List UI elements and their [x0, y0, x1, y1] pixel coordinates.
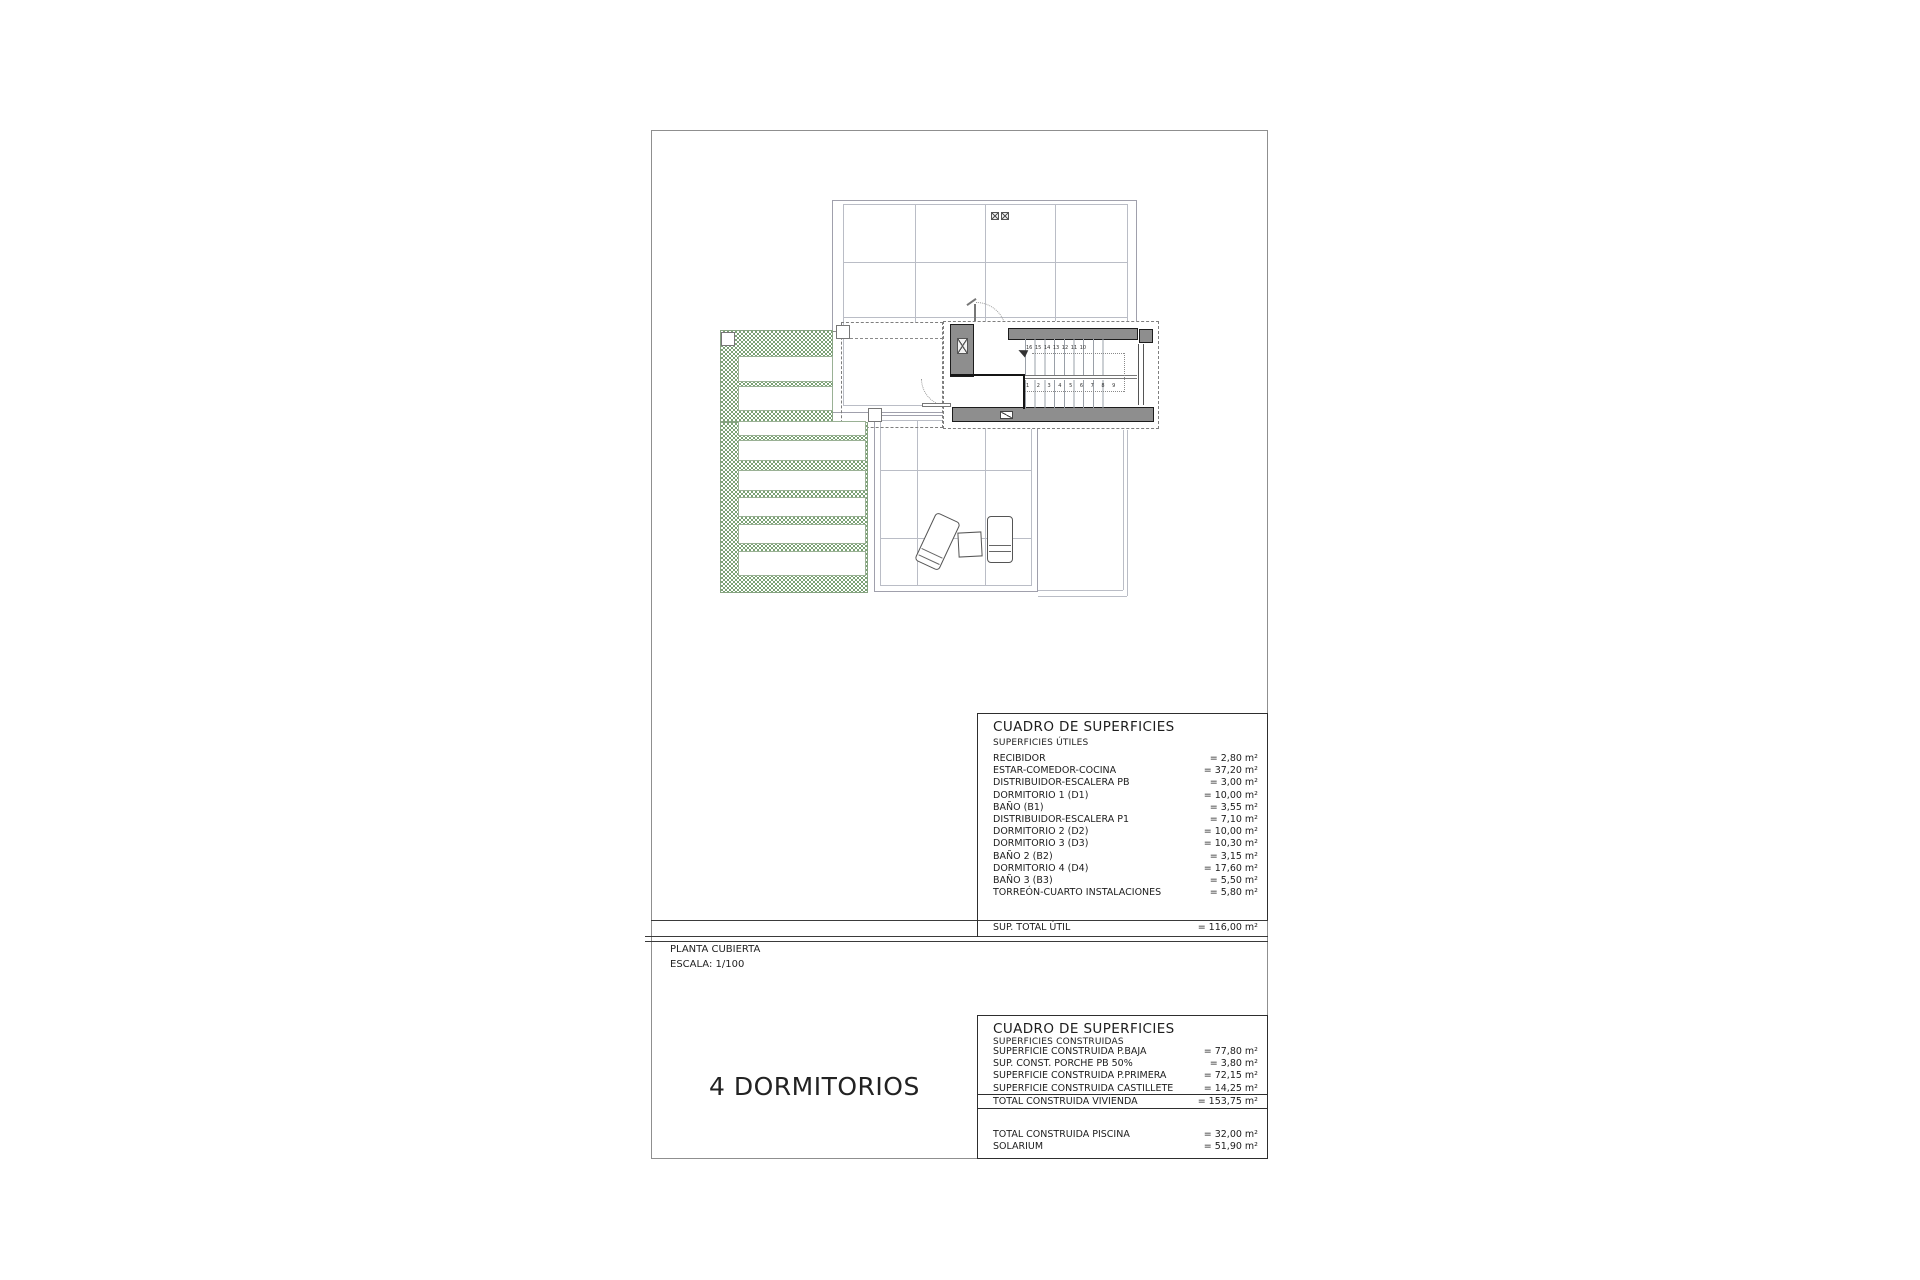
- bedrooms-caption: 4 DORMITORIOS: [709, 1072, 920, 1101]
- table-row: ESTAR-COMEDOR-COCINA= 37,20 m²: [993, 765, 1258, 777]
- pergola-slat: [738, 524, 866, 544]
- total-value: = 116,00 m²: [1198, 921, 1258, 935]
- row-value: = 3,55 m²: [1210, 802, 1258, 814]
- areas-rows-utiles: RECIBIDOR= 2,80 m² ESTAR-COMEDOR-COCINA=…: [993, 753, 1258, 899]
- row-value: = 3,15 m²: [1210, 851, 1258, 863]
- stair-walkline-turn: [1124, 353, 1125, 392]
- stair-corner-pier: [1139, 329, 1153, 343]
- roof-grid-v3: [1055, 204, 1056, 322]
- stair-step-numbers-upper: 16 15 14 13 12 11 10: [1026, 346, 1113, 351]
- parapet-line-v2: [1127, 430, 1128, 596]
- row-value: = 17,60 m²: [1204, 863, 1258, 875]
- total-value: = 153,75 m²: [1198, 1095, 1258, 1108]
- drawing-scale: ESCALA: 1/100: [670, 958, 744, 971]
- drain-symbol-icon: [1000, 411, 1013, 419]
- stair-walkline-top: [1032, 353, 1124, 354]
- row-label: BAÑO 2 (B2): [993, 851, 1053, 863]
- table-row: DORMITORIO 2 (D2)= 10,00 m²: [993, 826, 1258, 838]
- stair-step-numbers-lower: 1 2 3 4 5 6 7 8 9: [1026, 384, 1113, 389]
- table-row: DORMITORIO 3 (D3)= 10,30 m²: [993, 838, 1258, 850]
- pergola-slat: [738, 386, 833, 411]
- table-row: DISTRIBUIDOR-ESCALERA P1= 7,10 m²: [993, 814, 1258, 826]
- areas-rows-construidas: SUPERFICIE CONSTRUIDA P.BAJA= 77,80 m² S…: [993, 1046, 1258, 1095]
- row-label: SUPERFICIE CONSTRUIDA P.PRIMERA: [993, 1070, 1166, 1082]
- section-divider-rule-1: [645, 936, 1268, 937]
- roof-grid-h1: [843, 262, 1128, 263]
- stair-left-wall: [950, 324, 974, 377]
- row-label: DORMITORIO 4 (D4): [993, 863, 1088, 875]
- table-row: BAÑO 3 (B3)= 5,50 m²: [993, 875, 1258, 887]
- row-label: DISTRIBUIDOR-ESCALERA PB: [993, 777, 1130, 789]
- terrace-post: [868, 408, 882, 422]
- table-row: SUPERFICIE CONSTRUIDA P.PRIMERA= 72,15 m…: [993, 1070, 1258, 1082]
- table-row: SUPERFICIE CONSTRUIDA CASTILLETE= 14,25 …: [993, 1083, 1258, 1095]
- row-value: = 10,00 m²: [1204, 826, 1258, 838]
- sun-lounger: [987, 516, 1013, 563]
- stair-mid-landing: [1025, 375, 1137, 379]
- table-row: DISTRIBUIDOR-ESCALERA PB= 3,00 m²: [993, 777, 1258, 789]
- row-value: = 37,20 m²: [1204, 765, 1258, 777]
- table-row: SUPERFICIE CONSTRUIDA P.BAJA= 77,80 m²: [993, 1046, 1258, 1058]
- row-value: = 5,50 m²: [1210, 875, 1258, 887]
- roof-grid-v1: [915, 204, 916, 322]
- row-value: = 7,10 m²: [1210, 814, 1258, 826]
- row-value: = 3,00 m²: [1210, 777, 1258, 789]
- table-title: CUADRO DE SUPERFICIES: [993, 719, 1175, 735]
- parapet-line-h1: [1038, 590, 1123, 591]
- stair-window-icon: [957, 338, 968, 354]
- stair-window-strip: [1138, 344, 1144, 405]
- total-band-construidas-bottom: [977, 1108, 1268, 1109]
- row-label: BAÑO (B1): [993, 802, 1044, 814]
- section-divider-rule-2: [645, 941, 1268, 942]
- stair-walkline-bottom: [1025, 391, 1124, 392]
- row-label: DORMITORIO 1 (D1): [993, 790, 1088, 802]
- terrace-grid-v2: [985, 420, 986, 586]
- table-row: RECIBIDOR= 2,80 m²: [993, 753, 1258, 765]
- row-value: = 10,30 m²: [1204, 838, 1258, 850]
- pergola-post: [721, 332, 735, 346]
- row-label: DORMITORIO 2 (D2): [993, 826, 1088, 838]
- table-title: CUADRO DE SUPERFICIES: [993, 1021, 1175, 1037]
- row-label: TORREÓN-CUARTO INSTALACIONES: [993, 887, 1161, 899]
- pergola-slat: [738, 470, 866, 491]
- porch-dashed-beam: [845, 338, 943, 339]
- pergola-slat: [738, 551, 866, 576]
- table-subtitle: SUPERFICIES ÚTILES: [993, 738, 1088, 748]
- total-label: SUP. TOTAL ÚTIL: [993, 921, 1070, 935]
- row-value: = 32,00 m²: [1204, 1129, 1258, 1141]
- side-table: [957, 531, 982, 557]
- roof-vent-icon: [991, 212, 999, 220]
- row-value: = 72,15 m²: [1204, 1070, 1258, 1082]
- row-label: SUP. CONST. PORCHE PB 50%: [993, 1058, 1133, 1070]
- total-row-utiles: SUP. TOTAL ÚTIL = 116,00 m²: [993, 921, 1258, 935]
- row-label: BAÑO 3 (B3): [993, 875, 1053, 887]
- row-label: DORMITORIO 3 (D3): [993, 838, 1088, 850]
- row-value: = 14,25 m²: [1204, 1083, 1258, 1095]
- parapet-line-v1: [1123, 430, 1124, 590]
- total-label: TOTAL CONSTRUIDA VIVIENDA: [993, 1095, 1138, 1108]
- row-value: = 3,80 m²: [1210, 1058, 1258, 1070]
- row-value: = 77,80 m²: [1204, 1046, 1258, 1058]
- row-label: SUPERFICIE CONSTRUIDA P.BAJA: [993, 1046, 1147, 1058]
- row-label: SUPERFICIE CONSTRUIDA CASTILLETE: [993, 1083, 1173, 1095]
- roof-vent-icon: [1001, 212, 1009, 220]
- table-row: DORMITORIO 4 (D4)= 17,60 m²: [993, 863, 1258, 875]
- stair-bottom-wall: [952, 407, 1154, 422]
- row-value: = 10,00 m²: [1204, 790, 1258, 802]
- areas-table-utiles-side: [977, 920, 978, 937]
- row-value: = 2,80 m²: [1210, 753, 1258, 765]
- row-label: DISTRIBUIDOR-ESCALERA P1: [993, 814, 1129, 826]
- drawing-title: PLANTA CUBIERTA: [670, 943, 760, 956]
- row-value: = 51,90 m²: [1204, 1141, 1258, 1153]
- pergola-slat: [738, 440, 866, 461]
- drawing-sheet-canvas: 16 15 14 13 12 11 10 1 2 3 4 5 6 7 8 9 C…: [0, 0, 1920, 1280]
- stair-landing-wall-h: [950, 374, 1025, 376]
- table-row: SUP. CONST. PORCHE PB 50%= 3,80 m²: [993, 1058, 1258, 1070]
- table-row: TOTAL CONSTRUIDA PISCINA= 32,00 m²: [993, 1129, 1258, 1141]
- row-label: SOLARIUM: [993, 1141, 1043, 1153]
- porch-post: [836, 325, 850, 339]
- pergola-slat: [738, 356, 833, 382]
- parapet-line-h2: [1038, 596, 1127, 597]
- row-label: TOTAL CONSTRUIDA PISCINA: [993, 1129, 1130, 1141]
- row-value: = 5,80 m²: [1210, 887, 1258, 899]
- table-row: SOLARIUM= 51,90 m²: [993, 1141, 1258, 1153]
- pergola-slat: [738, 497, 866, 517]
- table-row: BAÑO (B1)= 3,55 m²: [993, 802, 1258, 814]
- table-row: TORREÓN-CUARTO INSTALACIONES= 5,80 m²: [993, 887, 1258, 899]
- terrace-door-leaf: [922, 403, 951, 407]
- total-row-construidas: TOTAL CONSTRUIDA VIVIENDA = 153,75 m²: [993, 1095, 1258, 1108]
- row-label: RECIBIDOR: [993, 753, 1046, 765]
- table-row: BAÑO 2 (B2)= 3,15 m²: [993, 851, 1258, 863]
- extra-rows-construidas: TOTAL CONSTRUIDA PISCINA= 32,00 m² SOLAR…: [993, 1129, 1258, 1153]
- pergola-slat: [738, 421, 866, 436]
- row-label: ESTAR-COMEDOR-COCINA: [993, 765, 1116, 777]
- stair-tower-dashed-outline: 16 15 14 13 12 11 10 1 2 3 4 5 6 7 8 9: [943, 321, 1159, 429]
- table-row: DORMITORIO 1 (D1)= 10,00 m²: [993, 790, 1258, 802]
- terrace-grid-h1: [880, 470, 1032, 471]
